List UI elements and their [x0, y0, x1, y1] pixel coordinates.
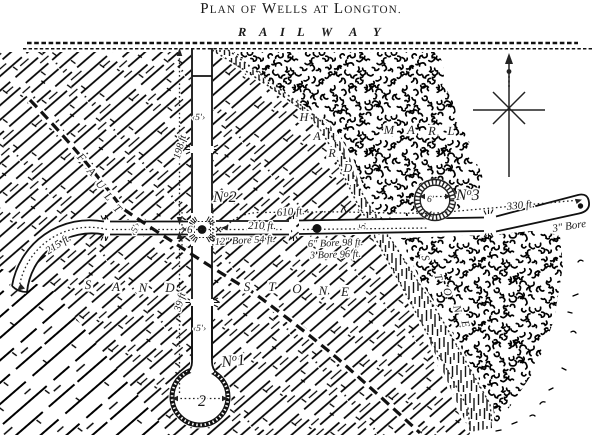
svg-text:W: W [321, 25, 333, 39]
svg-text:L: L [447, 124, 455, 138]
svg-text:No1: No1 [220, 352, 246, 371]
svg-text:A: A [406, 123, 415, 137]
svg-text:N: N [138, 280, 149, 295]
svg-text:R: R [237, 25, 246, 39]
svg-text:3 Bore 96 ft.: 3 Bore 96 ft. [309, 249, 361, 262]
svg-text:210 ft.: 210 ft. [248, 220, 276, 232]
svg-text:S: S [244, 279, 251, 294]
svg-text:A: A [111, 279, 120, 294]
svg-text:O: O [292, 281, 302, 296]
svg-text:S: S [85, 277, 92, 292]
svg-text:PLAN OF WELLS AT LONGTON.: PLAN OF WELLS AT LONGTON. [200, 1, 401, 17]
svg-text:‹5′›: ‹5′› [193, 324, 206, 334]
svg-text:H: H [299, 110, 310, 124]
svg-text:5.: 5. [358, 222, 369, 230]
svg-text:610 ft.: 610 ft. [276, 205, 305, 219]
svg-text:R: R [427, 124, 436, 138]
svg-text:A: A [258, 25, 267, 39]
svg-text:A: A [348, 25, 357, 39]
svg-text:L: L [296, 25, 305, 39]
svg-text:T: T [268, 279, 276, 294]
svg-text:M: M [383, 123, 395, 137]
svg-text:D: D [164, 280, 175, 295]
svg-text:A: A [312, 129, 321, 143]
svg-text:R: R [327, 146, 336, 160]
svg-text:N: N [318, 283, 329, 298]
svg-text:‹5′›: ‹5′› [192, 113, 205, 123]
svg-text:E: E [340, 284, 349, 299]
svg-text:2: 2 [198, 393, 206, 410]
svg-text:6′: 6′ [187, 224, 196, 236]
svg-text:D: D [343, 161, 353, 175]
svg-text:6′: 6′ [427, 195, 435, 205]
